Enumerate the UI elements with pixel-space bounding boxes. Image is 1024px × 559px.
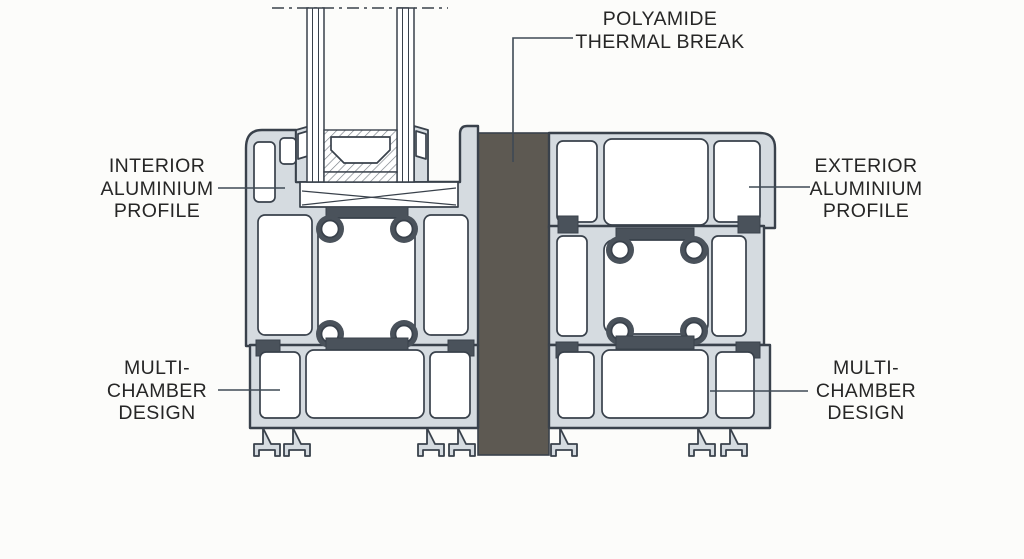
label-line: CHAMBER xyxy=(107,380,207,403)
glass-pane-inner xyxy=(307,8,324,182)
label-line: DESIGN xyxy=(816,402,916,425)
label-line: DESIGN xyxy=(107,402,207,425)
label-interior-aluminium-profile: INTERIOR ALUMINIUM PROFILE xyxy=(100,155,213,223)
label-line: INTERIOR xyxy=(100,155,213,178)
label-line: POLYAMIDE xyxy=(575,8,744,31)
frame-foot xyxy=(254,428,280,456)
label-line: THERMAL BREAK xyxy=(575,31,744,54)
clip-gasket xyxy=(738,216,760,233)
cross-section-drawing xyxy=(0,0,1024,559)
label-polyamide-thermal-break: POLYAMIDE THERMAL BREAK xyxy=(575,8,744,54)
label-line: MULTI- xyxy=(816,357,916,380)
thermal-break-slab xyxy=(478,133,549,455)
label-line: PROFILE xyxy=(809,200,922,223)
label-line: ALUMINIUM xyxy=(100,178,213,201)
label-multi-chamber-right: MULTI- CHAMBER DESIGN xyxy=(816,357,916,425)
label-exterior-aluminium-profile: EXTERIOR ALUMINIUM PROFILE xyxy=(809,155,922,223)
screw-port xyxy=(322,221,339,238)
frame-foot xyxy=(284,428,310,456)
label-line: EXTERIOR xyxy=(809,155,922,178)
frame-foot xyxy=(449,428,475,456)
screw-port xyxy=(686,242,703,259)
label-line: CHAMBER xyxy=(816,380,916,403)
frame-foot xyxy=(721,428,747,456)
glazing-support-wedge xyxy=(300,182,458,207)
frame-foot xyxy=(551,428,577,456)
glass-pane-outer xyxy=(397,8,414,182)
label-line: MULTI- xyxy=(107,357,207,380)
screw-port xyxy=(396,221,413,238)
diagram-canvas: POLYAMIDE THERMAL BREAK INTERIOR ALUMINI… xyxy=(0,0,1024,559)
label-multi-chamber-left: MULTI- CHAMBER DESIGN xyxy=(107,357,207,425)
frame-foot xyxy=(418,428,444,456)
label-line: ALUMINIUM xyxy=(809,178,922,201)
frame-foot xyxy=(689,428,715,456)
exterior-profile xyxy=(549,133,775,456)
label-line: PROFILE xyxy=(100,200,213,223)
screw-port xyxy=(612,242,629,259)
edge-seal xyxy=(324,172,397,182)
clip-gasket xyxy=(558,216,578,233)
